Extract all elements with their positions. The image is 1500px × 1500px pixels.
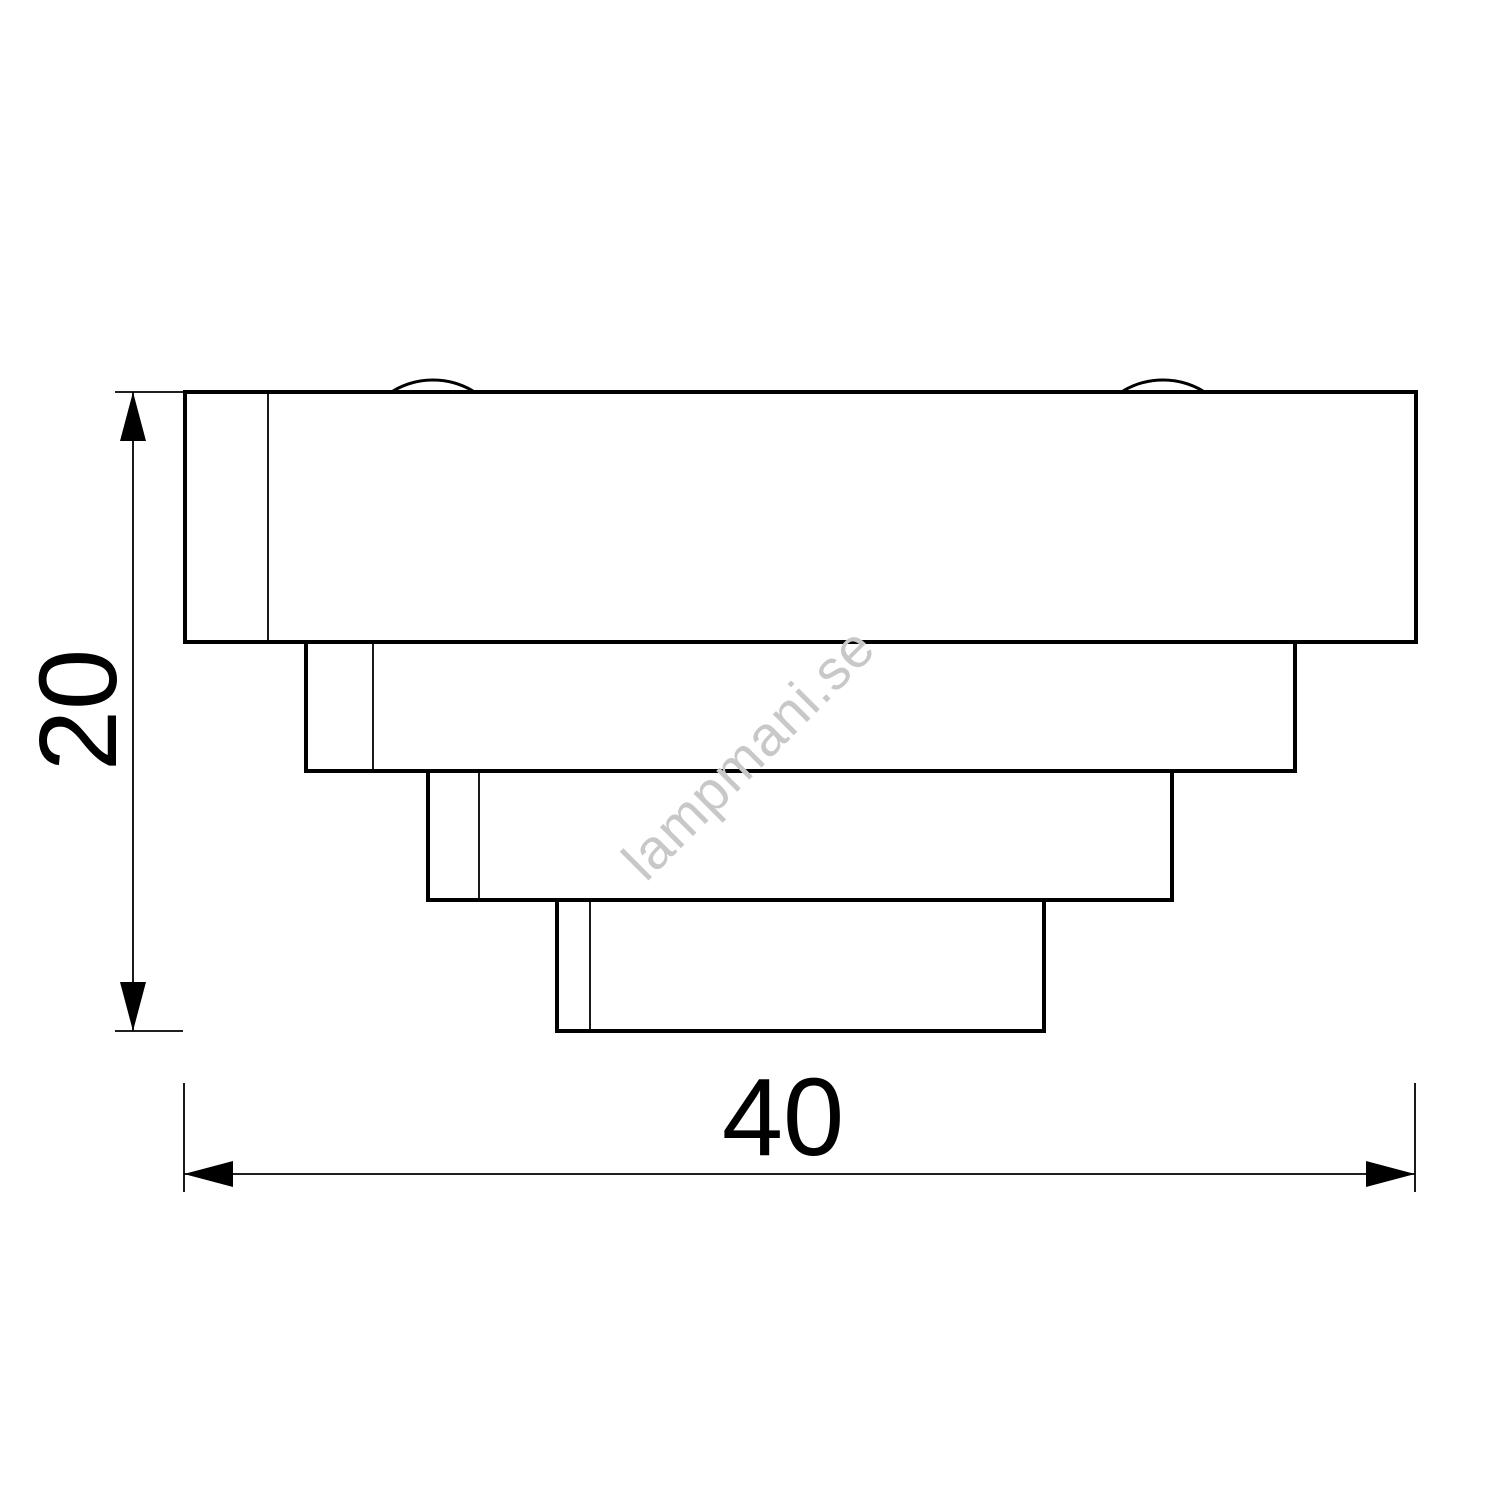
height-dim-arrow-down-icon	[120, 982, 146, 1031]
screw-bump-left-icon	[393, 380, 473, 391]
width-dimension-label: 40	[722, 1056, 844, 1179]
width-dim-arrow-left-icon	[184, 1161, 233, 1187]
drawing-page: 20 40 lampmani.se	[0, 0, 1500, 1500]
technical-drawing: 20 40 lampmani.se	[0, 0, 1500, 1500]
screw-bump-right-icon	[1123, 380, 1203, 391]
tier-3-rect	[428, 771, 1172, 900]
tier-4-rect	[557, 900, 1044, 1031]
width-dim-arrow-right-icon	[1366, 1161, 1415, 1187]
tier-1-rect	[185, 392, 1416, 642]
height-dimension-label: 20	[17, 649, 140, 771]
height-dim-arrow-up-icon	[120, 392, 146, 441]
